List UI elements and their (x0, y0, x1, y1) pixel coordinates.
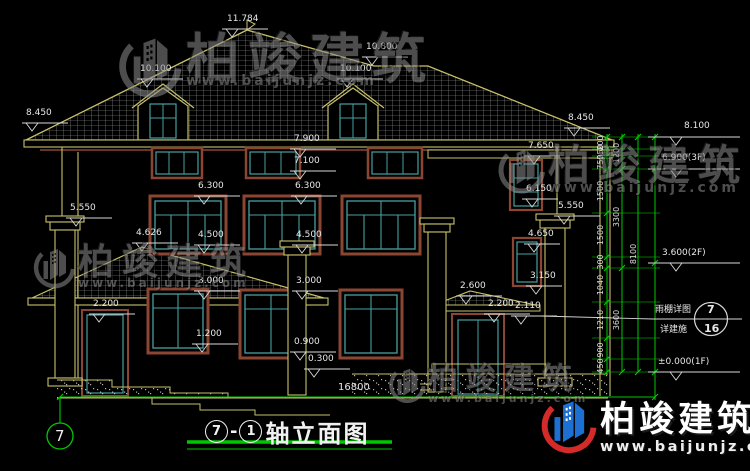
cad-elevation-screen: 11.784 10.100 10.800 10.100 8.450 8.450 … (0, 0, 750, 471)
level-8100: 8.100 (684, 122, 710, 131)
brand-logo: 柏竣建筑 www.baijunjz.com (534, 394, 750, 464)
title-axis-left-circle: 7 (205, 420, 228, 443)
watermark-brand: 柏竣建筑 (78, 246, 254, 280)
watermark-logo-icon (28, 246, 78, 294)
level-7900: 7.900 (294, 135, 320, 144)
brand-name: 柏竣建筑 (600, 403, 750, 438)
watermark-url: www.baijunjz.com (78, 276, 254, 290)
callout-line1: 雨棚详图 (655, 302, 691, 315)
overall-width-dim: 16800 (338, 383, 370, 393)
level-2110: 2.110 (515, 302, 541, 311)
level-4650: 4.650 (528, 230, 554, 239)
level-0300: 0.300 (308, 355, 334, 364)
level-4500-left: 4.500 (198, 231, 224, 240)
level-5550-left: 5.550 (70, 204, 96, 213)
level-0000-1f: ±0.000(1F) (658, 358, 709, 367)
watermark-logo-icon (384, 366, 428, 408)
watermark-mid-right: 柏竣建筑 www.baijunjz.com (492, 146, 748, 200)
chain-dim: 3300 (613, 207, 621, 227)
level-1200: 1.200 (196, 330, 222, 339)
window (340, 290, 402, 358)
window (152, 148, 202, 178)
chain-dim: 450 (597, 358, 605, 373)
chain-dim: 900 (597, 342, 605, 357)
level-0900: 0.900 (294, 338, 320, 347)
title-dash: - (230, 421, 237, 442)
title-axis-right-circle: 1 (239, 420, 262, 443)
chain-dim: 1500 (597, 225, 605, 245)
level-5550-right: 5.550 (558, 202, 584, 211)
window (246, 148, 300, 178)
level-6300-right: 6.300 (295, 182, 321, 191)
window (342, 196, 420, 254)
level-3150: 3.150 (530, 272, 556, 281)
watermark-url: www.baijunjz.com (548, 180, 748, 196)
brand-logo-icon (534, 394, 600, 464)
chain-dim-total: 8100 (630, 244, 638, 264)
window (368, 148, 422, 178)
level-6300-left: 6.300 (198, 182, 224, 191)
watermark-logo-icon (110, 34, 186, 106)
ground-floor-windows (148, 289, 402, 358)
watermark-brand: 柏竣建筑 (428, 366, 588, 395)
level-2200-right: 2.200 (488, 300, 514, 309)
window (148, 289, 208, 353)
level-3000-head: 3.000 (296, 277, 322, 286)
level-eave-right: 8.450 (568, 114, 594, 123)
watermark-logo-icon (492, 146, 548, 200)
drawing-title: 7 - 1 轴立面图 (205, 414, 369, 449)
axis-bubble-7: 7 (55, 427, 65, 445)
callout-line2: 详建施 (660, 322, 687, 335)
watermark-top: 柏竣建筑 www.baijunjz.com (110, 34, 434, 106)
level-eave-left: 8.450 (26, 109, 52, 118)
chain-dim: 3600 (613, 310, 621, 330)
watermark-url: www.baijunjz.com (186, 73, 434, 89)
chain-dim: 300 (597, 254, 605, 269)
callout-detail-no: 7 (707, 303, 715, 316)
level-2200-left: 2.200 (93, 300, 119, 309)
level-3600-2f: 3.600(2F) (662, 249, 706, 258)
brand-url: www.baijunjz.com (600, 439, 750, 455)
level-4626: 4.626 (136, 229, 162, 238)
chain-dim: 1040 (597, 275, 605, 295)
attic-windows (152, 148, 422, 178)
level-2600: 2.600 (460, 282, 486, 291)
title-text: 轴立面图 (265, 414, 369, 449)
chain-dim: 1210 (597, 310, 605, 330)
level-7100: 7.100 (294, 157, 320, 166)
level-ridge: 11.784 (227, 15, 259, 24)
callout-sheet-no: 16 (704, 322, 719, 335)
watermark-mid-left: 柏竣建筑 www.baijunjz.com (28, 246, 254, 294)
level-4500-right: 4.500 (296, 231, 322, 240)
